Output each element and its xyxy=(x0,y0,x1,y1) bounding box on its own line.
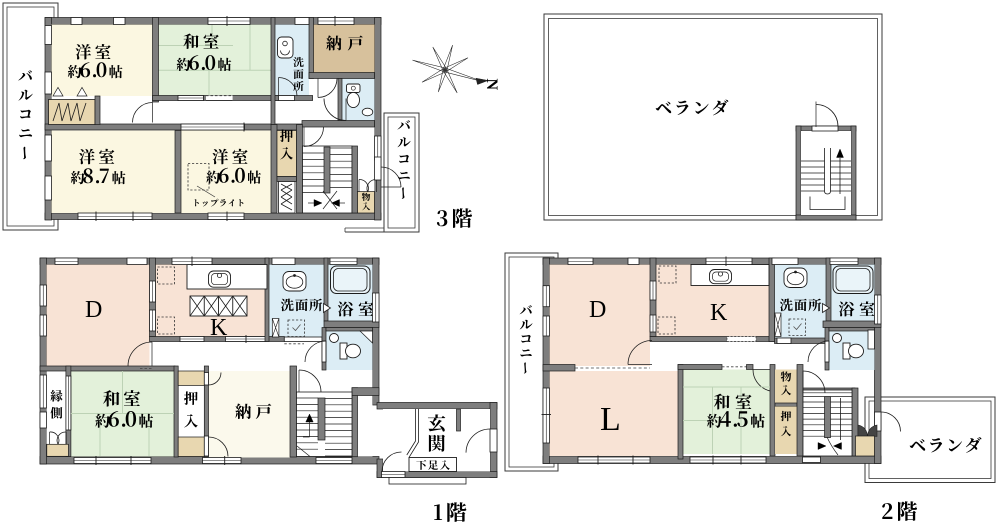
svg-text:K: K xyxy=(210,315,228,341)
svg-text:D: D xyxy=(589,297,606,323)
svg-text:L: L xyxy=(600,401,621,438)
svg-text:D: D xyxy=(85,297,102,323)
svg-text:K: K xyxy=(710,300,728,326)
svg-text:N: N xyxy=(483,79,500,91)
